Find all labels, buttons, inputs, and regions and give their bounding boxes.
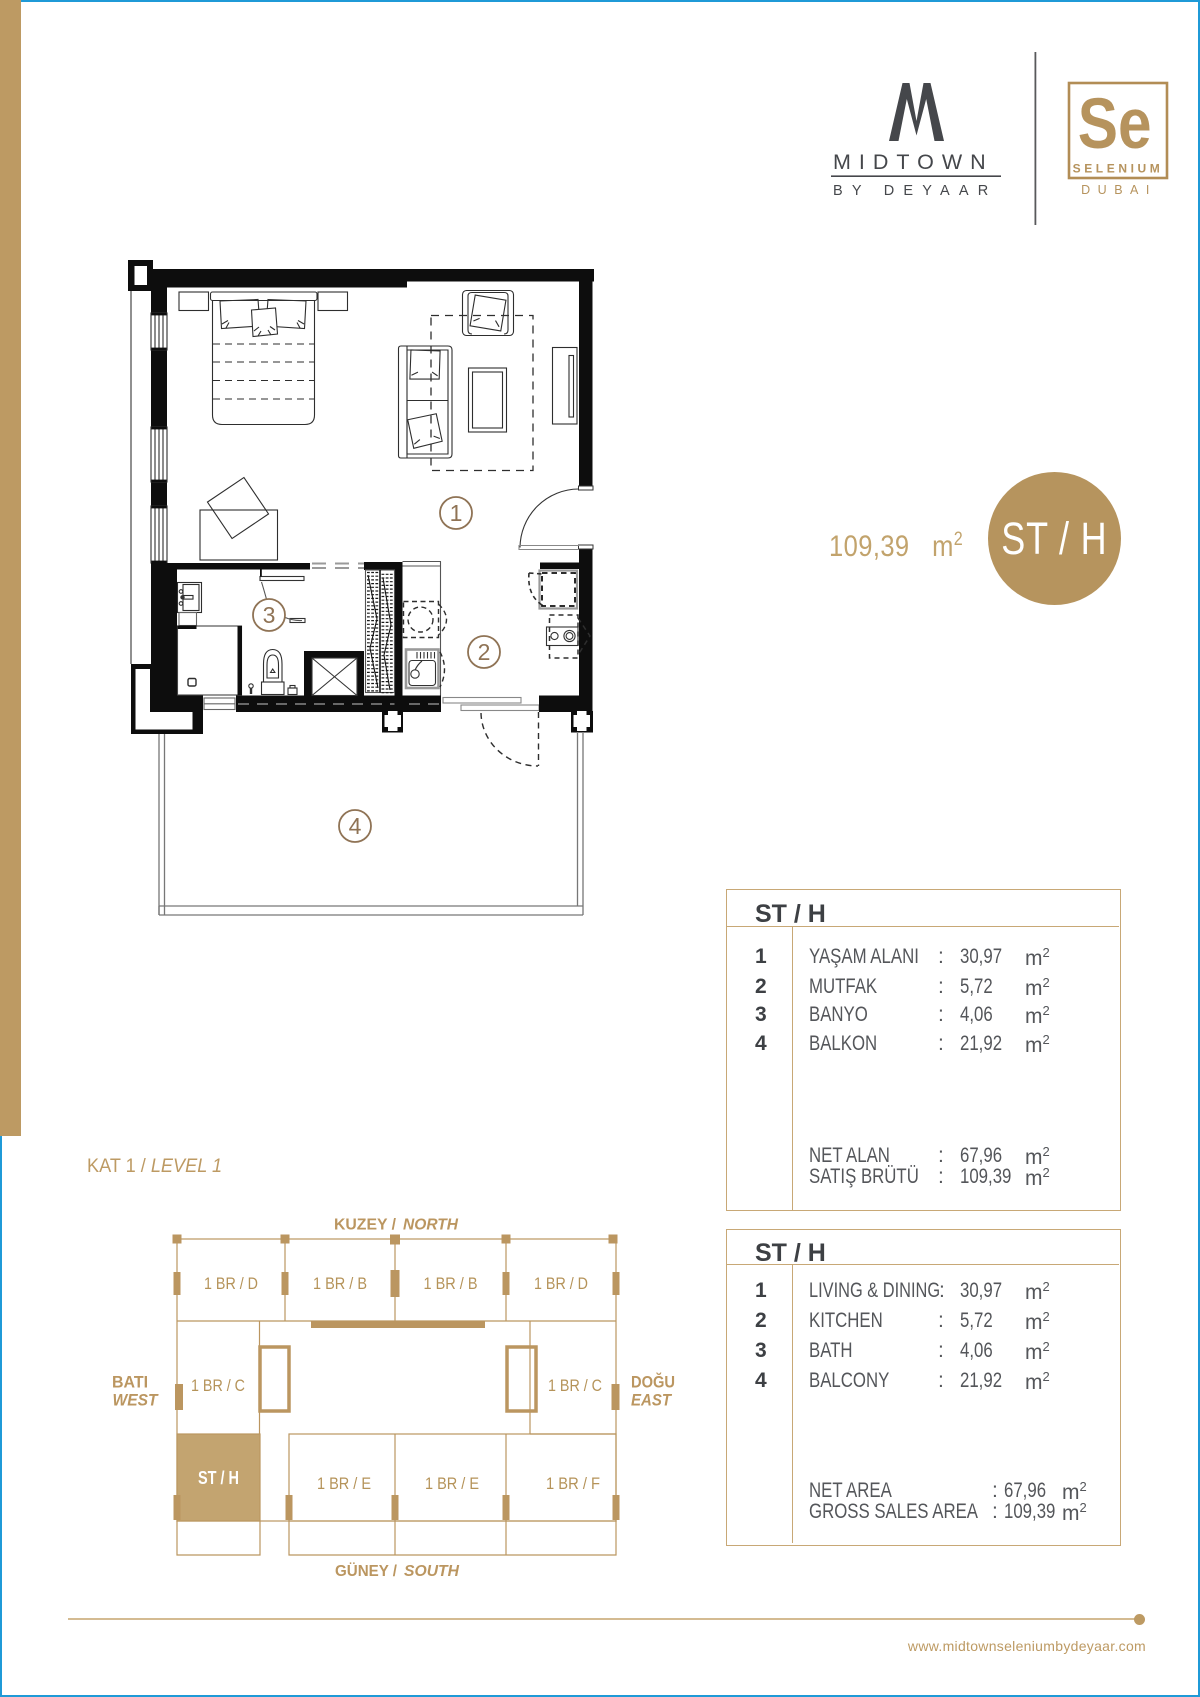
svg-text:WEST: WEST	[113, 1391, 159, 1410]
svg-text:SOUTH: SOUTH	[404, 1563, 459, 1580]
svg-text:1 BR / F: 1 BR / F	[546, 1475, 600, 1493]
svg-text:1 BR / B: 1 BR / B	[424, 1275, 478, 1293]
svg-text:1 BR / C: 1 BR / C	[191, 1377, 245, 1395]
svg-text:1 BR / D: 1 BR / D	[534, 1275, 588, 1293]
svg-text:1: 1	[450, 500, 463, 526]
svg-text:2: 2	[478, 639, 491, 665]
svg-text:NORTH: NORTH	[403, 1217, 458, 1234]
svg-text:Se: Se	[1078, 83, 1152, 163]
svg-text:MIDTOWN: MIDTOWN	[833, 150, 994, 174]
svg-text:ST / H: ST / H	[198, 1467, 239, 1488]
svg-text:1 BR / E: 1 BR / E	[317, 1475, 371, 1493]
svg-text:4: 4	[349, 813, 362, 839]
svg-text:SELENIUM: SELENIUM	[1073, 162, 1164, 176]
svg-text:1 BR / D: 1 BR / D	[204, 1275, 258, 1293]
svg-text:EAST: EAST	[631, 1391, 672, 1410]
svg-text:DOĞU: DOĞU	[631, 1373, 675, 1392]
svg-text:BY DEYAAR: BY DEYAAR	[833, 183, 997, 199]
svg-text:BATI: BATI	[112, 1373, 148, 1392]
svg-text:3: 3	[263, 602, 276, 628]
svg-text:1 BR / E: 1 BR / E	[425, 1475, 479, 1493]
svg-text:DUBAI: DUBAI	[1081, 183, 1157, 197]
svg-text:KUZEY /: KUZEY /	[334, 1217, 397, 1234]
svg-text:1 BR / C: 1 BR / C	[548, 1377, 602, 1395]
svg-text:1 BR / B: 1 BR / B	[313, 1275, 367, 1293]
svg-text:GÜNEY /: GÜNEY /	[335, 1561, 398, 1580]
